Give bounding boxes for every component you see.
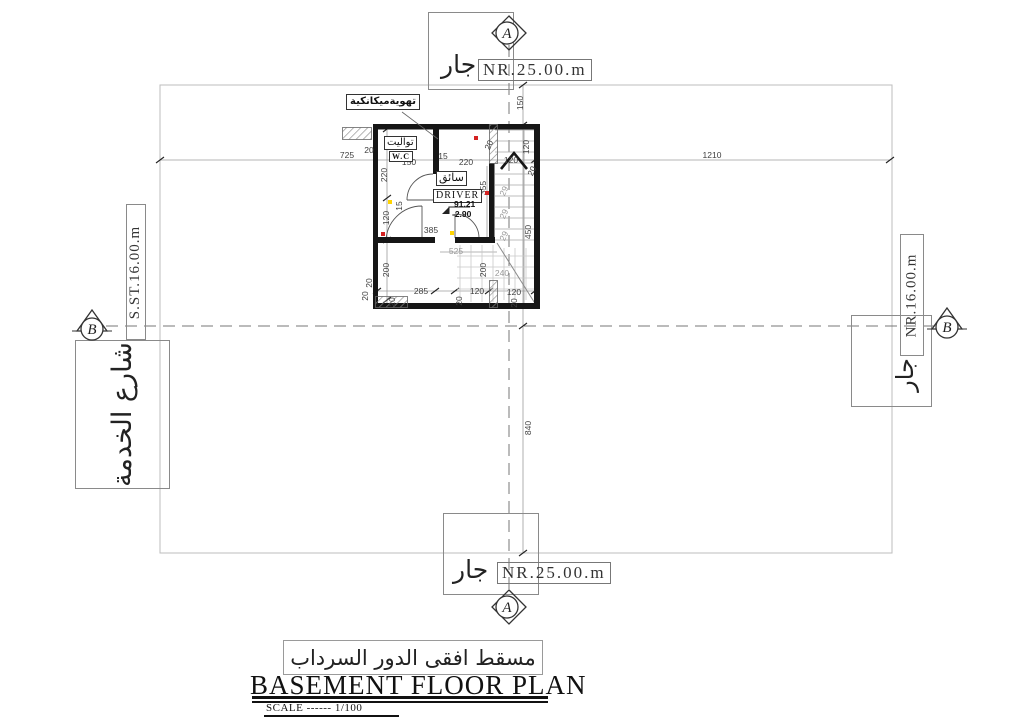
svg-text:B: B	[942, 320, 951, 336]
title-rule-1	[252, 696, 548, 699]
level-elevation: 91.21	[454, 200, 475, 209]
dimension-lines	[160, 85, 890, 553]
section-marker-b-left: B	[70, 304, 114, 348]
left-street-name-label: شارع الخدمة	[107, 342, 138, 487]
top-neighbor-label: جار	[441, 52, 476, 77]
scale-label: SCALE ------ 1/100	[266, 702, 362, 714]
left-street-width-box: S.ST.16.00.m	[126, 204, 146, 340]
plot-boundary	[160, 85, 892, 553]
hatched-walls	[343, 125, 498, 308]
plan-marker-dot	[485, 191, 489, 195]
svg-text:A: A	[501, 600, 512, 616]
svg-text:B: B	[87, 322, 96, 338]
plan-marker-dot	[474, 136, 478, 140]
plan-marker-dot	[381, 232, 385, 236]
left-street-width-label: S.ST.16.00.m	[128, 225, 145, 318]
vent-note-tag: تهويةميكانكية	[346, 94, 420, 110]
bottom-boundary-length: NR.25.00.m	[497, 562, 611, 584]
right-neighbor-wrap: جار	[885, 345, 925, 405]
top-boundary-length: NR.25.00.m	[478, 59, 592, 81]
dimension-ticks	[156, 82, 894, 556]
driver-arabic-tag: سائق	[436, 171, 467, 186]
svg-text:A: A	[501, 26, 512, 42]
wc-arabic-tag: تواليت	[384, 136, 417, 150]
bottom-neighbor-label: جار	[453, 557, 488, 582]
section-marker-a-top: A	[487, 11, 531, 55]
left-street-name-box: شارع الخدمة	[75, 340, 170, 489]
scale-rule	[264, 715, 399, 717]
section-marker-a-bottom: A	[487, 585, 531, 629]
plan-marker-dot	[450, 231, 454, 235]
basement-floor-plan-sheet: 7251210150840201501522020120201202201512…	[0, 0, 1024, 725]
plan-marker-dot	[388, 200, 392, 204]
right-neighbor-label: جار	[891, 358, 919, 392]
level-depth: -2.90	[452, 210, 471, 219]
section-marker-b-right: B	[925, 302, 969, 346]
wc-latin-tag: W.C	[389, 151, 413, 162]
